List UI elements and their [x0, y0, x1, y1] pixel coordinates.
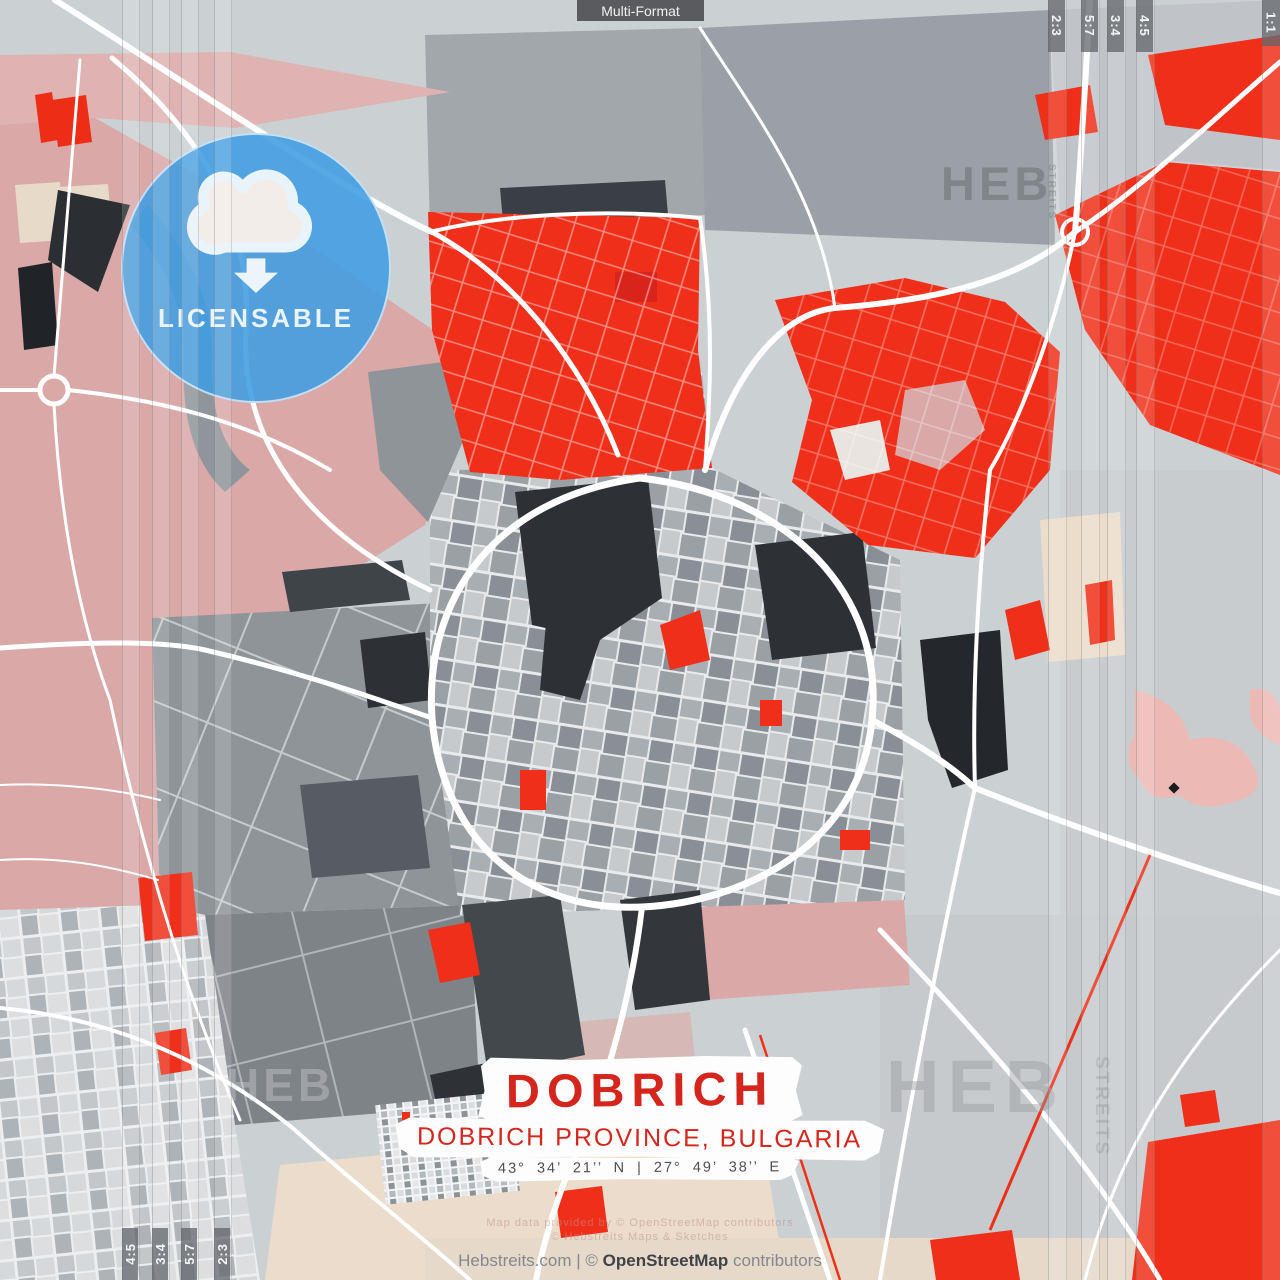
- format-label-text: Multi-Format: [601, 3, 680, 19]
- crop-guide-column: [122, 0, 140, 1280]
- attribution-watermark: Map data provided by © OpenStreetMap con…: [300, 1216, 980, 1244]
- attribution-line2: © Hebstreits Maps & Sketches: [300, 1230, 980, 1244]
- cloud-download-icon: [177, 161, 335, 293]
- format-label: Multi-Format: [577, 0, 704, 21]
- attribution-line1: Map data provided by © OpenStreetMap con…: [300, 1216, 980, 1230]
- crop-mark-3-4: 3:4: [1107, 0, 1124, 52]
- crop-guide-column: [1081, 0, 1100, 1280]
- crop-mark-1-1: 1:1: [1262, 0, 1280, 46]
- crop-guide-column: [152, 0, 170, 1280]
- crop-mark-5-7: 5:7: [1081, 0, 1098, 52]
- map-poster: HEB STREITS HEB STREITS HEB 2:3 5:7 3:4 …: [0, 0, 1280, 1280]
- footer-prefix: Hebstreits.com | ©: [458, 1251, 602, 1270]
- footer-osm: OpenStreetMap: [603, 1251, 729, 1270]
- crop-guide-column: [214, 0, 232, 1280]
- footer-suffix: contributors: [728, 1251, 822, 1270]
- crop-guide-column: [1107, 0, 1126, 1280]
- crop-mark-2-3: 2:3: [1048, 0, 1065, 52]
- footer-credit: Hebstreits.com | © OpenStreetMap contrib…: [0, 1251, 1280, 1271]
- crop-mark-4-5: 4:5: [1136, 0, 1153, 52]
- brand-watermark-top-right: HEB: [941, 156, 1052, 211]
- crop-guide-column: [1048, 0, 1067, 1280]
- crop-guide-column: [1136, 0, 1155, 1280]
- crop-guide-column: [1262, 0, 1280, 1280]
- crop-guide-column: [181, 0, 199, 1280]
- brand-watermark-bottom-left: HEB: [226, 1058, 335, 1112]
- brand-watermark-bottom-right: HEB: [886, 1044, 1066, 1129]
